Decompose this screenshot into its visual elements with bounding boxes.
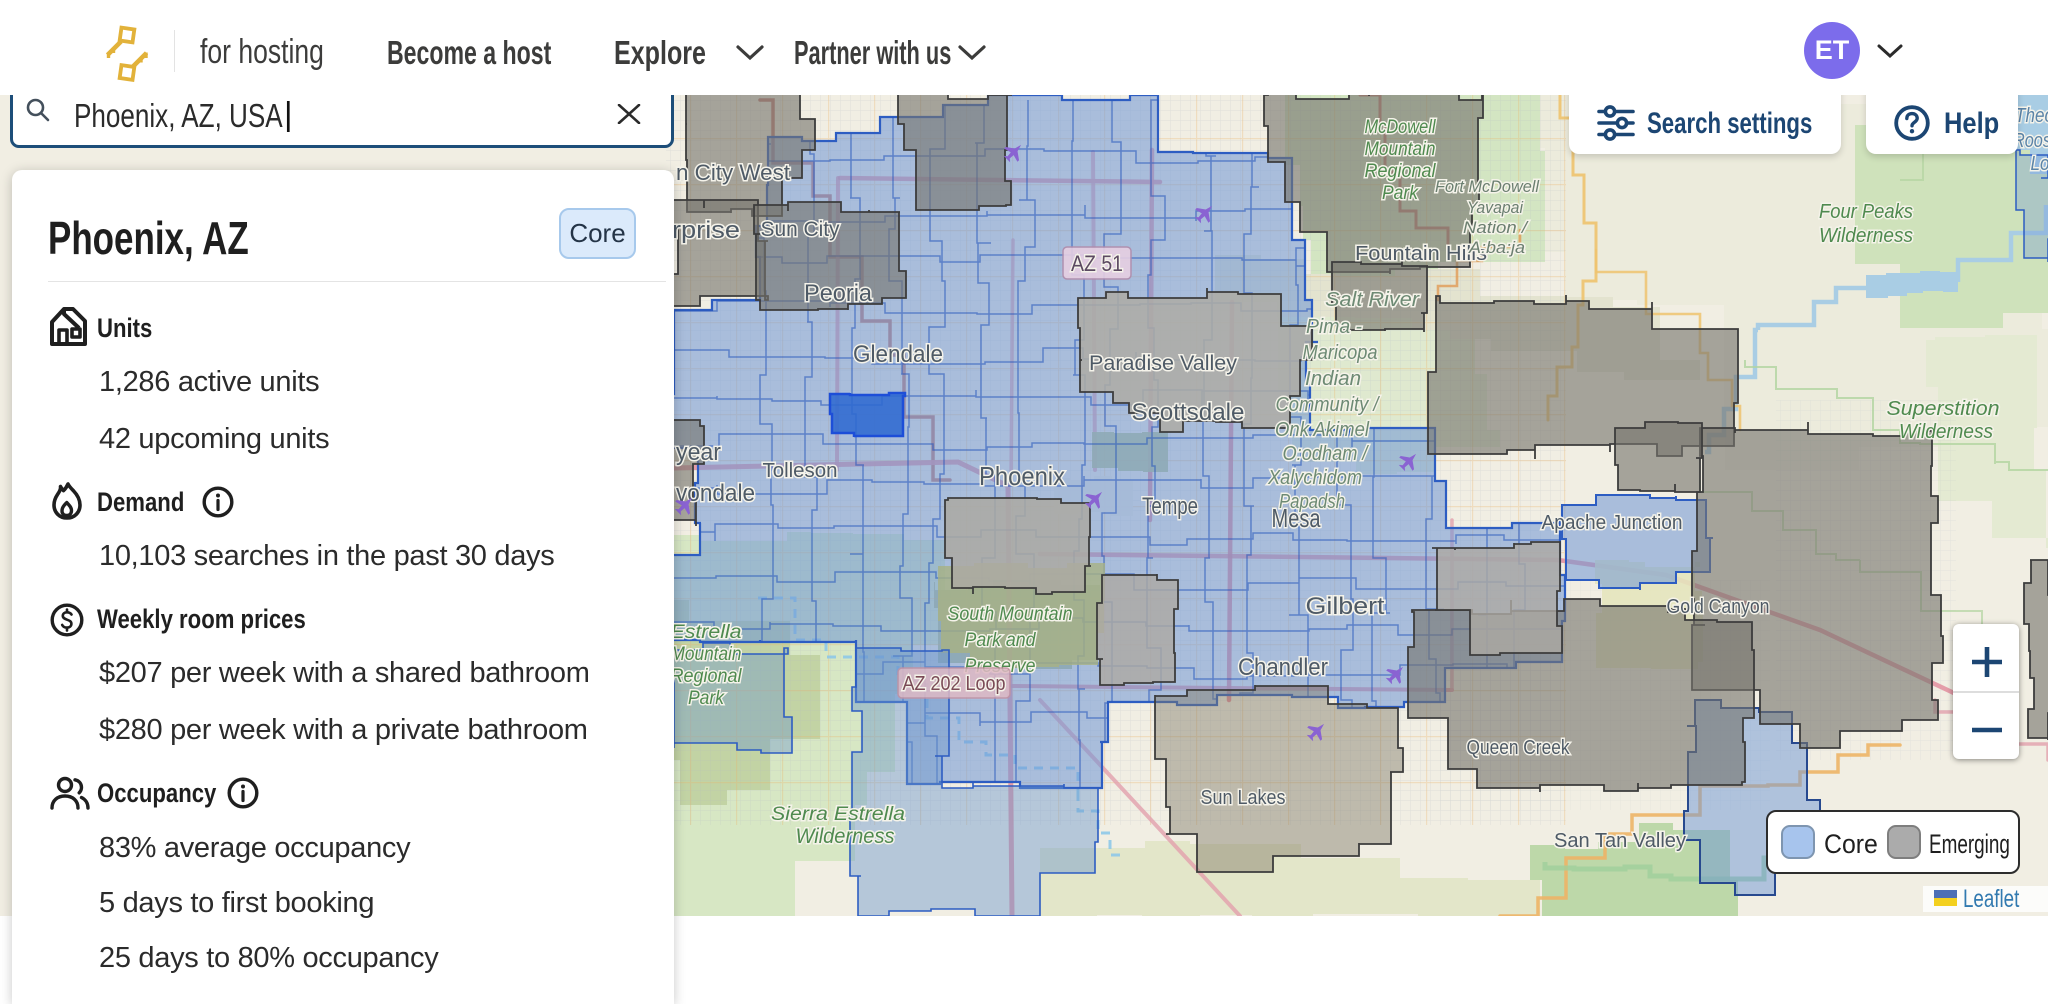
svg-text:Gilbert: Gilbert <box>1306 593 1385 620</box>
svg-text:Scottsdale: Scottsdale <box>1132 399 1245 426</box>
svg-text:Papadsh: Papadsh <box>1279 491 1345 513</box>
svg-text:Thec: Thec <box>2015 105 2048 127</box>
svg-text:Peoria: Peoria <box>804 280 873 307</box>
svg-text:Park and: Park and <box>965 630 1037 651</box>
svg-text:South Mountain: South Mountain <box>948 604 1073 625</box>
svg-text:Indian: Indian <box>1305 368 1361 390</box>
svg-text:Gold Canyon: Gold Canyon <box>1667 596 1770 618</box>
svg-text:Mountain: Mountain <box>671 644 742 665</box>
svg-text:Salt River: Salt River <box>1325 289 1420 311</box>
svg-text:Park: Park <box>688 688 725 709</box>
svg-text:Paradise Valley: Paradise Valley <box>1089 352 1238 375</box>
svg-text:AZ 51: AZ 51 <box>1071 251 1123 276</box>
svg-text:McDowell: McDowell <box>1365 117 1437 138</box>
svg-text:Estrella: Estrella <box>671 622 742 643</box>
svg-text:Fountain Hills: Fountain Hills <box>1355 243 1487 265</box>
svg-text:A:ba:ja: A:ba:ja <box>1468 238 1525 257</box>
svg-text:Sierra Estrella: Sierra Estrella <box>771 804 905 825</box>
svg-text:Phoenix: Phoenix <box>979 461 1065 491</box>
svg-text:rprise: rprise <box>672 217 740 244</box>
svg-text:Nation /: Nation / <box>1463 218 1529 237</box>
svg-text:Wilderness: Wilderness <box>796 825 895 848</box>
svg-text:San Tan Valley: San Tan Valley <box>1554 830 1686 852</box>
svg-text:Tolleson: Tolleson <box>763 460 838 482</box>
svg-text:Mountain: Mountain <box>1365 139 1436 160</box>
svg-text:Lo: Lo <box>2031 153 2048 175</box>
svg-text:Park: Park <box>1382 183 1419 204</box>
svg-text:Xalychidom: Xalychidom <box>1267 467 1362 489</box>
svg-text:Queen Creek: Queen Creek <box>1467 737 1571 759</box>
svg-text:Fort McDowell: Fort McDowell <box>1435 177 1540 196</box>
svg-text:Regional: Regional <box>671 666 743 687</box>
svg-text:AZ 202 Loop: AZ 202 Loop <box>903 673 1006 695</box>
svg-text:Sun City: Sun City <box>761 218 840 241</box>
svg-text:Community /: Community / <box>1276 394 1381 416</box>
svg-text:Tempe: Tempe <box>1142 493 1198 520</box>
svg-text:O:odham /: O:odham / <box>1283 443 1370 465</box>
svg-text:Chandler: Chandler <box>1238 654 1328 681</box>
svg-text:Apache Junction: Apache Junction <box>1542 512 1683 534</box>
svg-text:Maricopa: Maricopa <box>1303 342 1378 364</box>
svg-text:Wilderness: Wilderness <box>1899 421 1993 443</box>
svg-text:Wilderness: Wilderness <box>1819 225 1913 247</box>
svg-text:Pima -: Pima - <box>1306 316 1362 338</box>
svg-text:Glendale: Glendale <box>853 341 943 368</box>
svg-text:Yavapai: Yavapai <box>1467 198 1524 217</box>
svg-text:Regional: Regional <box>1365 161 1437 182</box>
svg-text:Roos: Roos <box>2013 130 2048 152</box>
svg-text:Sun Lakes: Sun Lakes <box>1201 787 1286 809</box>
svg-text:Onk Akimel: Onk Akimel <box>1275 419 1370 441</box>
svg-text:n City West: n City West <box>676 160 790 185</box>
svg-text:Superstition: Superstition <box>1887 398 2000 420</box>
svg-text:Four Peaks: Four Peaks <box>1819 201 1913 223</box>
svg-text:year: year <box>676 439 721 466</box>
